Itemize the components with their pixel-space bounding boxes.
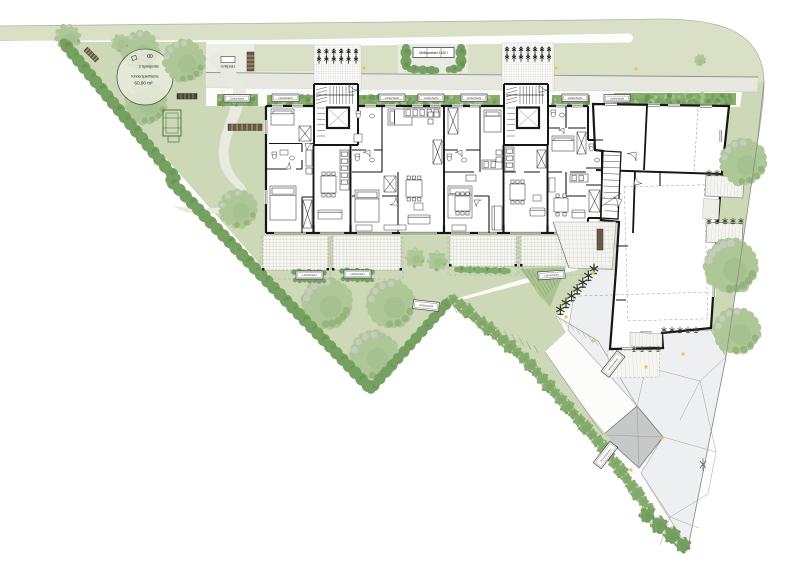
svg-text:Grillplatz: Grillplatz	[221, 65, 236, 69]
svg-text:Lichtschacht: Lichtschacht	[302, 273, 317, 277]
svg-text:Lichtschacht: Lichtschacht	[230, 96, 245, 100]
svg-text:60,00 m²: 60,00 m²	[134, 81, 153, 86]
svg-text:Lichtschacht: Lichtschacht	[568, 96, 583, 100]
svg-text:Müllsammler 1100 l: Müllsammler 1100 l	[419, 51, 448, 55]
svg-text:Lichtschacht: Lichtschacht	[610, 96, 625, 100]
svg-text:Lichtschacht: Lichtschacht	[424, 96, 439, 100]
svg-text:Lichtschacht: Lichtschacht	[467, 96, 482, 100]
svg-text:2 Spielgeräte: 2 Spielgeräte	[139, 65, 159, 69]
svg-text:Kinderspielfläche: Kinderspielfläche	[131, 75, 158, 79]
svg-text:Lichtschacht: Lichtschacht	[278, 96, 293, 100]
svg-text:Lichtschacht: Lichtschacht	[350, 272, 365, 276]
svg-text:Lichtschacht: Lichtschacht	[385, 96, 400, 100]
